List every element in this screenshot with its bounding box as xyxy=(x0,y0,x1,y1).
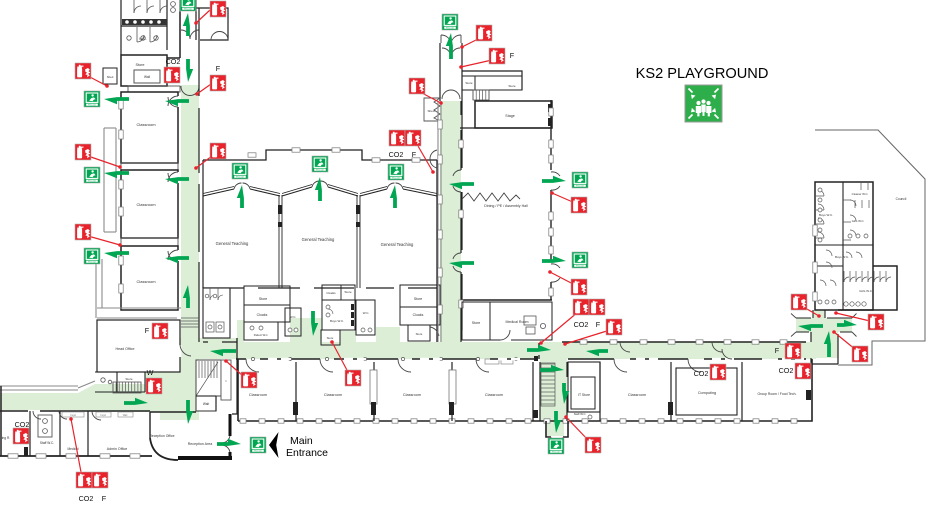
svg-text:Classroom: Classroom xyxy=(628,393,646,397)
svg-text:F: F xyxy=(145,326,150,335)
svg-text:General Teaching: General Teaching xyxy=(216,241,249,246)
svg-text:CO2: CO2 xyxy=(79,494,94,503)
svg-text:Store: Store xyxy=(344,290,352,294)
svg-text:Girls W.C.: Girls W.C. xyxy=(852,219,865,223)
svg-text:F: F xyxy=(216,64,221,73)
svg-text:W.C.: W.C. xyxy=(363,311,370,315)
svg-text:Store: Store xyxy=(327,336,334,340)
svg-text:ing R.: ing R. xyxy=(2,436,10,440)
svg-text:Classroom: Classroom xyxy=(403,393,421,397)
svg-text:Store: Store xyxy=(465,81,473,85)
svg-text:Wait: Wait xyxy=(203,402,209,406)
svg-text:General Teaching: General Teaching xyxy=(302,237,335,242)
svg-text:Boys W.C.: Boys W.C. xyxy=(819,213,833,217)
svg-text:CO2: CO2 xyxy=(779,366,794,375)
svg-text:Store: Store xyxy=(259,297,267,301)
svg-text:W.C.: W.C. xyxy=(290,315,297,319)
svg-text:CO2: CO2 xyxy=(166,57,181,66)
svg-text:Medical Room: Medical Room xyxy=(506,320,529,324)
svg-text:Group Room / Food Tech.: Group Room / Food Tech. xyxy=(758,392,797,396)
svg-text:Classroom: Classroom xyxy=(485,393,503,397)
svg-text:Computing: Computing xyxy=(698,391,716,395)
svg-text:Classroom: Classroom xyxy=(136,202,156,207)
svg-text:CO2: CO2 xyxy=(574,320,589,329)
svg-text:Stage: Stage xyxy=(505,114,514,118)
svg-text:CO2: CO2 xyxy=(694,369,709,378)
svg-text:Cloaks: Cloaks xyxy=(413,313,424,317)
svg-text:F: F xyxy=(412,150,417,159)
svg-text:Shed: Shed xyxy=(427,109,434,113)
svg-text:F: F xyxy=(596,320,601,329)
svg-text:F: F xyxy=(510,51,515,60)
svg-text:Staff W.C.: Staff W.C. xyxy=(40,441,54,445)
svg-text:Store: Store xyxy=(508,84,516,88)
svg-text:CO2: CO2 xyxy=(15,420,30,429)
svg-text:Cleaner W.C.: Cleaner W.C. xyxy=(852,192,869,196)
svg-text:Classroom: Classroom xyxy=(324,393,342,397)
svg-text:Girls W.C.: Girls W.C. xyxy=(859,289,873,293)
svg-text:Store: Store xyxy=(414,297,422,301)
svg-text:Main: Main xyxy=(290,435,313,447)
svg-text:General Teaching: General Teaching xyxy=(381,242,414,247)
svg-text:Store: Store xyxy=(135,63,144,67)
svg-text:Classroom: Classroom xyxy=(136,279,156,284)
svg-text:Classroom: Classroom xyxy=(249,393,267,397)
svg-text:Dining / PE / Assembly Hall: Dining / PE / Assembly Hall xyxy=(484,204,528,208)
svg-text:Staff W.C.: Staff W.C. xyxy=(574,412,587,416)
svg-text:Head Office: Head Office xyxy=(116,347,135,351)
svg-text:Boys W.C.: Boys W.C. xyxy=(330,319,344,323)
svg-text:KS2 PLAYGROUND: KS2 PLAYGROUND xyxy=(636,66,769,82)
svg-text:Wall: Wall xyxy=(123,414,128,417)
svg-text:F: F xyxy=(775,346,780,355)
svg-text:Council: Council xyxy=(896,197,907,201)
svg-text:Boys W.C.: Boys W.C. xyxy=(835,255,849,259)
svg-text:C: C xyxy=(225,380,227,383)
svg-text:Cupd: Cupd xyxy=(70,414,76,417)
svg-text:Patient W.C.: Patient W.C. xyxy=(254,333,269,337)
svg-text:Store: Store xyxy=(125,377,133,381)
svg-text:F: F xyxy=(102,494,107,503)
svg-text:Store: Store xyxy=(416,332,423,336)
svg-text:Wall: Wall xyxy=(144,75,150,79)
svg-text:Entrance: Entrance xyxy=(286,447,328,459)
svg-text:Cupd: Cupd xyxy=(100,414,106,417)
svg-text:CO2: CO2 xyxy=(389,150,404,159)
svg-text:Cloaks: Cloaks xyxy=(326,291,336,295)
svg-text:Reception Area: Reception Area xyxy=(188,442,213,446)
svg-text:W: W xyxy=(147,368,154,377)
svg-text:Shed: Shed xyxy=(107,75,114,79)
svg-text:Reception Office: Reception Office xyxy=(149,434,174,438)
svg-text:W.C.: W.C. xyxy=(139,37,147,41)
svg-text:IT Store: IT Store xyxy=(578,393,590,397)
svg-text:Classroom: Classroom xyxy=(136,122,156,127)
svg-text:Cloaks: Cloaks xyxy=(257,313,268,317)
svg-text:Store: Store xyxy=(472,321,481,325)
svg-text:Admin Office: Admin Office xyxy=(107,447,128,451)
